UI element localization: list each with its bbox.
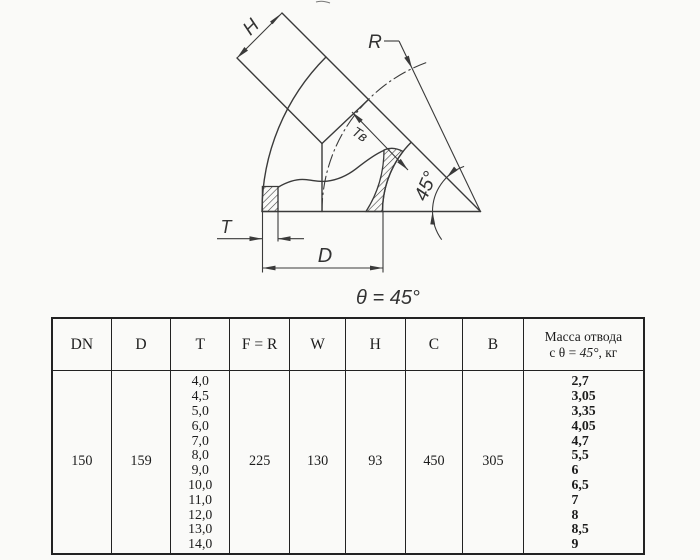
svg-text:θ = 45°: θ = 45°	[356, 287, 420, 309]
svg-text:D: D	[318, 245, 332, 267]
svg-text:Тв: Тв	[349, 123, 371, 145]
svg-text:45°: 45°	[410, 168, 442, 204]
svg-text:H: H	[239, 15, 264, 40]
svg-text:R: R	[368, 32, 382, 53]
svg-text:T: T	[221, 217, 234, 237]
